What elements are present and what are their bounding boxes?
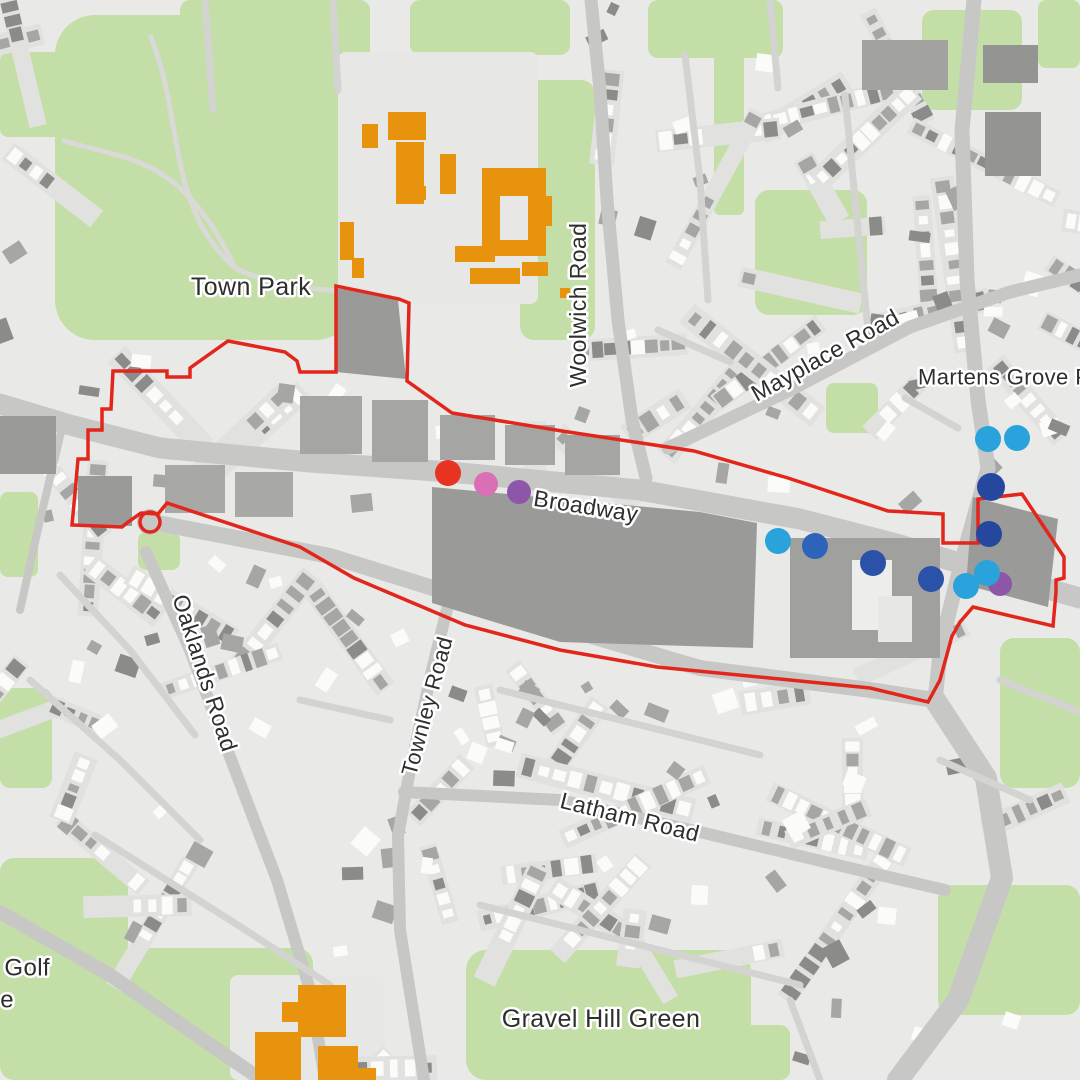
building: [2, 240, 28, 264]
building: [944, 229, 954, 237]
building: [246, 564, 267, 588]
large-building: [505, 425, 555, 465]
map-marker-14: [1004, 425, 1030, 451]
map-marker-2: [474, 472, 498, 496]
building: [390, 1059, 398, 1077]
highlighted-building: [350, 1068, 376, 1080]
building: [248, 717, 271, 738]
building: [869, 216, 883, 235]
park-area: [0, 688, 52, 788]
map-marker-1: [435, 460, 461, 486]
building: [948, 259, 960, 269]
building: [350, 493, 373, 513]
map-canvas: Town ParkWoolwich RoadMayplace RoadMarte…: [0, 0, 1080, 1080]
building-courtyard: [878, 596, 912, 642]
large-building: [0, 416, 56, 474]
building: [268, 576, 283, 589]
building: [691, 885, 709, 905]
large-building: [985, 112, 1041, 176]
highlighted-building: [298, 985, 346, 1037]
building: [673, 133, 688, 145]
park-area: [410, 0, 570, 55]
building: [596, 855, 613, 873]
building: [855, 716, 879, 735]
building: [631, 340, 646, 355]
large-building: [336, 288, 406, 379]
park-area: [700, 1025, 790, 1080]
building: [592, 341, 604, 358]
map-marker-3: [507, 480, 531, 504]
map-label-gravel-hill-green: Gravel Hill Green: [502, 1005, 701, 1033]
park-area: [1000, 638, 1080, 788]
large-building: [440, 415, 495, 460]
building: [944, 242, 959, 256]
building: [162, 896, 173, 914]
building: [350, 826, 380, 857]
map-label-woolwich-road: Woolwich Road: [565, 223, 591, 388]
building: [0, 317, 14, 344]
map-marker-10: [974, 560, 1000, 586]
map-label-golf-fragment-line2: e: [0, 987, 14, 1014]
map-marker-11: [976, 521, 1002, 547]
building: [315, 667, 339, 693]
building: [919, 216, 929, 225]
building: [712, 688, 740, 715]
building: [846, 754, 858, 766]
building: [342, 867, 364, 880]
building: [915, 200, 929, 210]
building: [390, 629, 410, 648]
large-building: [300, 396, 362, 454]
large-building: [966, 497, 1058, 607]
map-label-golf-fragment-line1: n Golf: [0, 955, 50, 982]
building: [86, 640, 102, 655]
building: [634, 216, 657, 241]
building: [131, 354, 152, 369]
building: [921, 275, 934, 285]
highlighted-building: [388, 112, 426, 140]
minor-road: [905, 398, 958, 428]
building: [78, 385, 100, 397]
building: [208, 555, 227, 573]
building: [333, 945, 348, 957]
large-building: [78, 476, 132, 526]
building: [987, 317, 1010, 339]
park-area: [1038, 0, 1080, 68]
building: [448, 685, 468, 702]
building: [606, 2, 619, 16]
building: [660, 340, 670, 351]
building: [581, 681, 594, 694]
building: [90, 464, 106, 476]
large-building: [565, 435, 620, 475]
building: [765, 869, 787, 892]
building: [453, 727, 469, 745]
building: [133, 899, 141, 912]
building: [85, 542, 100, 551]
building: [84, 584, 95, 598]
building: [984, 307, 1003, 317]
building: [763, 121, 778, 137]
building: [564, 857, 580, 875]
highlighted-building: [540, 196, 552, 226]
building: [68, 659, 84, 683]
map-marker-7: [918, 566, 944, 592]
building: [421, 857, 434, 874]
minor-road: [333, 0, 338, 90]
building: [940, 211, 955, 225]
map-marker-13: [975, 426, 1001, 452]
building: [493, 770, 515, 786]
building: [707, 794, 720, 809]
building: [877, 907, 897, 925]
building: [919, 260, 934, 271]
highlighted-building: [352, 258, 364, 278]
building: [629, 913, 639, 923]
map-label-town-park: Town Park: [191, 273, 311, 301]
map-label-martens-grove-park: Martens Grove Park: [918, 365, 1080, 390]
building: [220, 633, 244, 653]
map-marker-5: [802, 533, 828, 559]
building: [574, 406, 590, 423]
highlighted-building: [340, 222, 354, 260]
highlighted-building: [470, 268, 520, 284]
map: Town ParkWoolwich RoadMayplace RoadMarte…: [0, 0, 1080, 1080]
building: [644, 702, 669, 723]
large-building: [235, 472, 293, 517]
highlighted-building: [440, 154, 456, 194]
building: [648, 914, 671, 934]
building: [405, 1059, 416, 1076]
map-marker-12: [977, 473, 1005, 501]
large-building: [372, 400, 428, 462]
large-building: [983, 45, 1038, 83]
highlighted-building: [522, 262, 548, 276]
minor-road: [300, 700, 390, 720]
building: [516, 707, 535, 728]
building: [658, 131, 673, 151]
building: [920, 243, 931, 258]
minor-road: [790, 1000, 820, 1080]
building: [715, 462, 729, 484]
building: [644, 339, 658, 353]
building: [144, 632, 160, 646]
building: [624, 925, 640, 939]
map-label-townley-road: Townley Road: [396, 634, 457, 779]
highlighted-building: [255, 1032, 301, 1080]
building: [845, 741, 860, 751]
highlighted-building: [362, 124, 378, 148]
building: [148, 899, 156, 912]
building: [466, 742, 488, 765]
map-marker-4: [765, 528, 791, 554]
highlighted-building: [282, 1002, 300, 1022]
building-courtyard: [500, 196, 528, 240]
building: [177, 898, 187, 912]
map-marker-6: [860, 550, 886, 576]
large-building: [862, 40, 948, 90]
highlighted-building: [455, 246, 495, 262]
building: [831, 998, 842, 1018]
building: [277, 383, 296, 404]
building: [478, 688, 491, 701]
highlighted-building: [408, 186, 426, 200]
